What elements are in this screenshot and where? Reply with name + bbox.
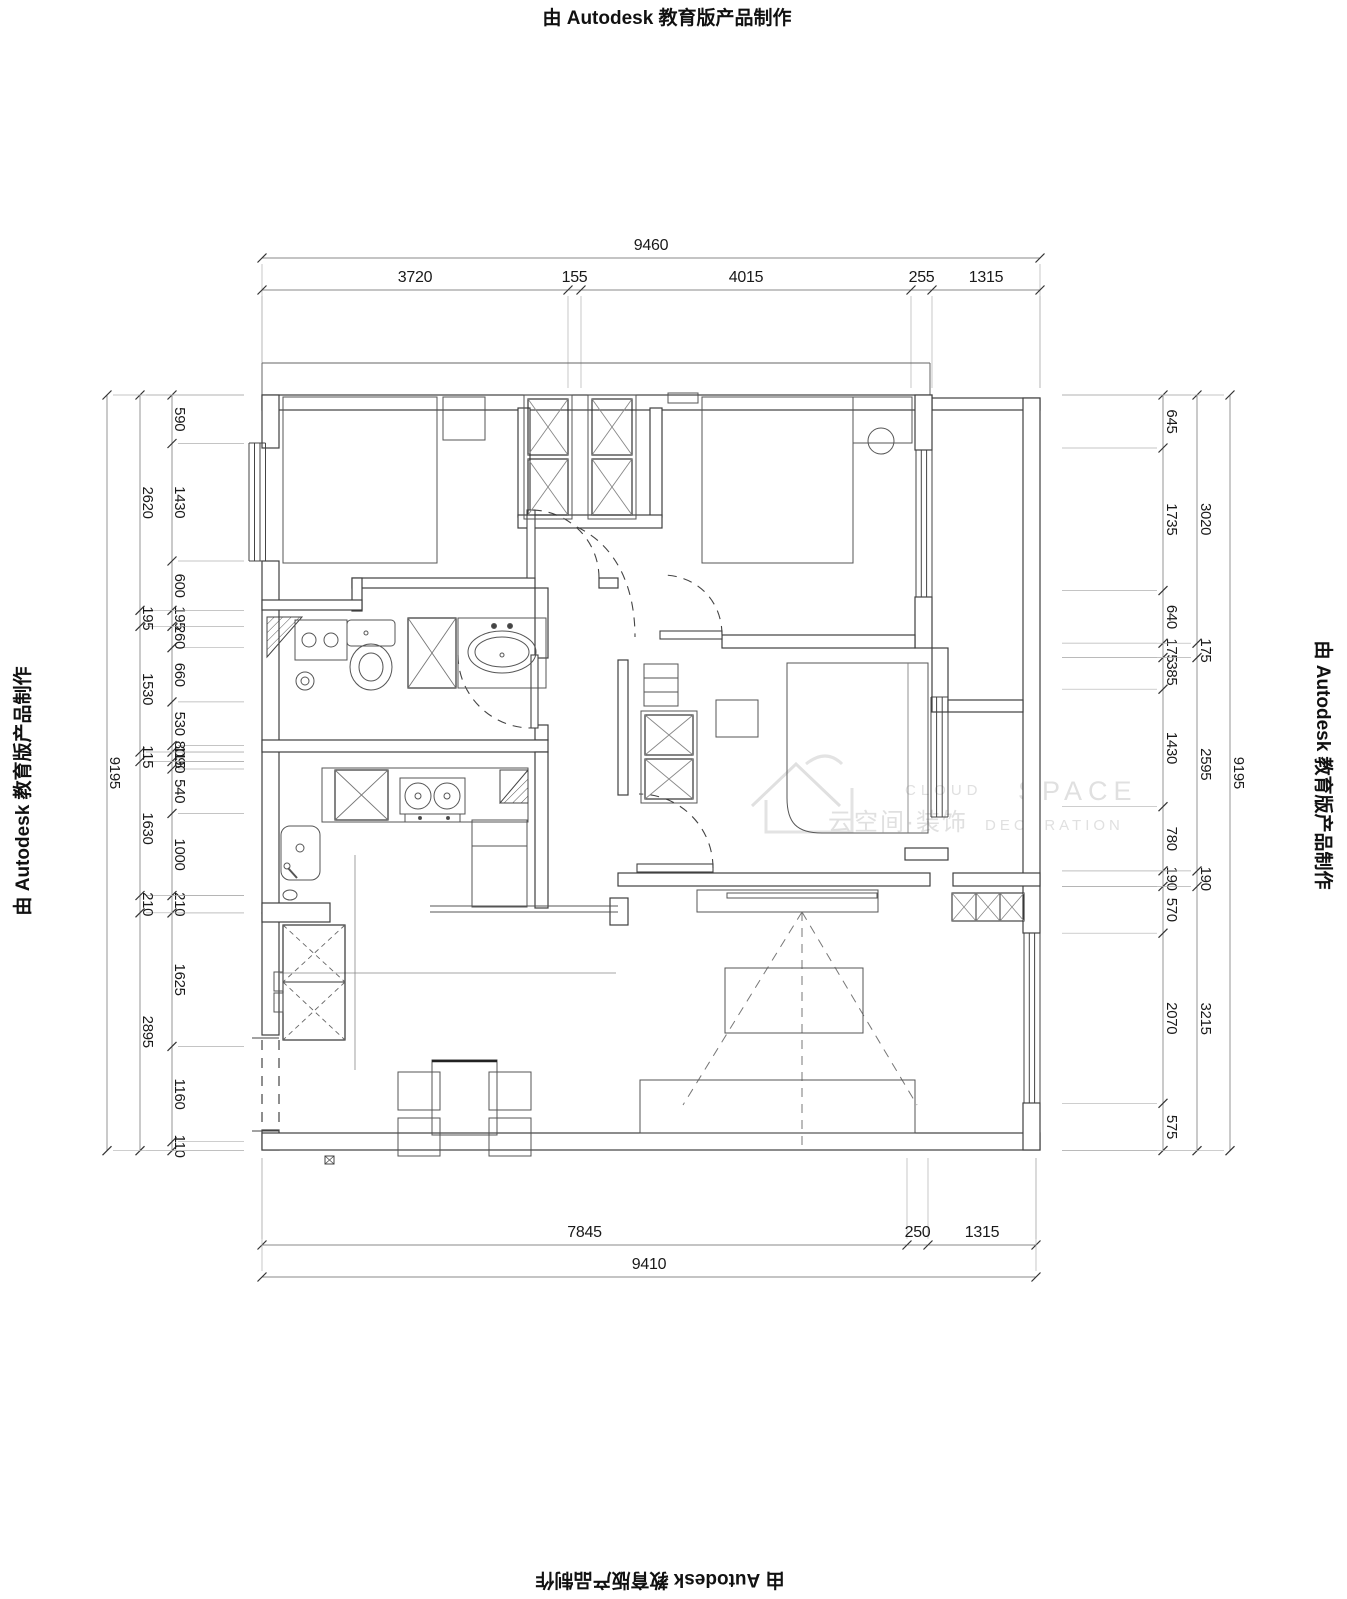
wall-wing-top [948, 700, 1023, 712]
dim-label: 4015 [729, 269, 764, 286]
wardrobe-x-marks [528, 399, 632, 515]
chair [398, 1072, 440, 1110]
dim-label: 115 [139, 745, 156, 768]
window-left-bedroom1 [249, 443, 266, 561]
dim-label: 255 [909, 269, 935, 286]
dim-label: 195 [139, 606, 156, 630]
dashed-opening-left [262, 1040, 279, 1130]
dim-label: 250 [905, 1224, 931, 1241]
shelf [644, 692, 678, 706]
dim-group: 645173564017538514307801905702070575 [1062, 391, 1180, 1156]
coffee-table [725, 968, 863, 1033]
bedroom3-furniture [641, 663, 928, 833]
wall-hall-top-b [599, 578, 618, 588]
floorplan-svg: CLOUD SPACE 云空间·装饰 DECORATION 9460372015… [0, 0, 1347, 1599]
floor-drain [296, 672, 314, 690]
dim-label: 260 [171, 625, 188, 649]
fridge [335, 770, 388, 820]
kitchen-drain [283, 890, 297, 900]
corner-shelf [267, 617, 302, 657]
dim-group: 5901430600195260660530801159054010002101… [168, 391, 245, 1158]
tv [727, 893, 877, 898]
wall-wing-left [932, 648, 948, 712]
watermark-cloud: CLOUD [905, 782, 983, 799]
wall-left-2 [262, 561, 279, 913]
hall-wardrobe [524, 395, 636, 519]
dim-label: 590 [171, 407, 188, 431]
wall-bed3-step [905, 848, 948, 860]
bed-bedroom3 [787, 663, 928, 833]
roof-offset-line [262, 363, 930, 395]
wall-bottom [262, 1133, 1040, 1150]
dim-label: 9195 [106, 757, 123, 789]
dim-label: 1630 [139, 812, 156, 844]
doors [458, 510, 722, 872]
shelf [644, 678, 678, 692]
bed-bedroom2 [702, 397, 853, 563]
vanity [295, 620, 347, 660]
wall-hall-divider [618, 660, 628, 795]
opening-stubs [252, 1038, 279, 1131]
walls [262, 395, 1040, 1150]
living-room-furniture [325, 890, 1024, 1164]
wall-bed2-right-1 [915, 395, 932, 450]
wall-bed2-bottom [722, 635, 915, 648]
dim-label: 2620 [139, 487, 156, 519]
dim-label: 3215 [1197, 1003, 1214, 1035]
dim-label: 1625 [171, 964, 188, 996]
dim-label: 575 [1163, 1115, 1180, 1139]
dim-label: 9460 [634, 237, 669, 254]
dim-label: 640 [1163, 605, 1180, 629]
dim-label: 1160 [171, 1079, 188, 1110]
dim-group: 78452501315 [258, 1158, 1041, 1250]
bedroom3-wardrobe [641, 711, 697, 803]
kitchen-bench [472, 820, 527, 907]
wall-tv-a [618, 873, 930, 886]
dim-label: 190 [1197, 867, 1214, 891]
door-bedroom3 [637, 794, 713, 872]
dim-group: 9195 [1062, 391, 1247, 1156]
lamp-bedroom2 [868, 428, 894, 454]
dim-label: 90 [171, 757, 188, 773]
dim-label: 1315 [965, 1224, 1000, 1241]
washing-machine [408, 618, 456, 688]
dim-label: 9410 [632, 1256, 667, 1273]
dim-label: 210 [139, 892, 156, 916]
stove [400, 778, 465, 822]
dim-group: 9460 [258, 237, 1045, 388]
dim-label: 2070 [1163, 1002, 1180, 1034]
bed-bedroom1 [283, 397, 437, 563]
cad-sheet: 由 Autodesk 教育版产品制作 由 Autodesk 教育版产品制作 由 … [0, 0, 1347, 1599]
sofa [640, 1080, 915, 1133]
hall-cabinet [274, 925, 345, 1040]
bedroom1-furniture [283, 397, 485, 563]
dim-label: 110 [171, 1135, 188, 1158]
wall-right-1 [1023, 398, 1040, 933]
kitchen-sink [281, 826, 320, 900]
door-bathroom [458, 655, 538, 728]
dim-label: 2895 [139, 1016, 156, 1048]
wall-left-3 [262, 913, 279, 1035]
toilet [347, 620, 395, 690]
wall-kitchen-right [535, 752, 548, 908]
dim-label: 155 [562, 269, 588, 286]
bathroom-fixtures [267, 617, 546, 690]
wall-bed2-right-2 [915, 597, 932, 648]
dim-group: 2620195153011516302102895 [136, 391, 245, 1156]
dim-label: 645 [1163, 409, 1180, 433]
dim-label: 600 [171, 574, 188, 598]
dim-group: 372015540152551315 [258, 269, 1045, 388]
dim-label: 175 [1197, 638, 1214, 662]
dim-label: 1000 [171, 838, 188, 870]
window-right-bedroom3 [931, 697, 948, 817]
wall-bath-bottom [262, 740, 548, 752]
desk-chair [716, 700, 758, 737]
dim-label: 9195 [1230, 757, 1247, 789]
dim-label: 660 [171, 663, 188, 687]
wall-hall-top-a [352, 578, 535, 588]
window-right-living [1024, 933, 1040, 1103]
dim-label: 530 [171, 712, 188, 736]
dim-label: 190 [1163, 867, 1180, 891]
watermark-cn: 云空间·装饰 [828, 809, 968, 836]
tv-projection [683, 912, 917, 1150]
dim-label: 780 [1163, 827, 1180, 851]
dim-group: 9410 [258, 1158, 1041, 1282]
dim-label: 1530 [139, 673, 156, 705]
wall-bath-top-left [262, 600, 362, 610]
dim-label: 1430 [1163, 732, 1180, 764]
watermark-decoration: DECORATION [985, 817, 1124, 834]
wall-right-2 [1023, 1103, 1040, 1150]
dim-label: 1315 [969, 269, 1004, 286]
kitchen-corner-unit [500, 770, 528, 803]
entry-cabinet [952, 893, 1024, 921]
dim-label: 385 [1163, 661, 1180, 685]
window-right-bedroom2 [916, 450, 932, 597]
cloud-space-watermark: CLOUD SPACE 云空间·装饰 DECORATION [752, 756, 1138, 836]
wall-tv-b [953, 873, 1040, 886]
dim-label: 1735 [1163, 503, 1180, 535]
shelf [644, 664, 678, 678]
dim-label: 570 [1163, 898, 1180, 922]
wall-wardrobe-right [650, 408, 662, 517]
wall-wardrobe-bottom [518, 515, 662, 528]
chair [489, 1072, 531, 1110]
dim-label: 3720 [398, 269, 433, 286]
dim-label: 7845 [567, 1224, 602, 1241]
dim-label: 540 [171, 779, 188, 803]
bedroom2-furniture [668, 393, 912, 563]
dim-group: 302017525951903215 [1062, 391, 1214, 1156]
wall-kitchen-bottom [262, 903, 330, 922]
furniture [267, 393, 1024, 1164]
dining-table [432, 1060, 497, 1135]
wall-left-1 [262, 395, 279, 448]
dim-label: 3020 [1197, 503, 1214, 535]
dim-label: 2595 [1197, 748, 1214, 780]
dim-label: 175 [1163, 638, 1180, 662]
floor-drain-living [325, 1156, 334, 1164]
dim-label: 1430 [171, 486, 188, 518]
